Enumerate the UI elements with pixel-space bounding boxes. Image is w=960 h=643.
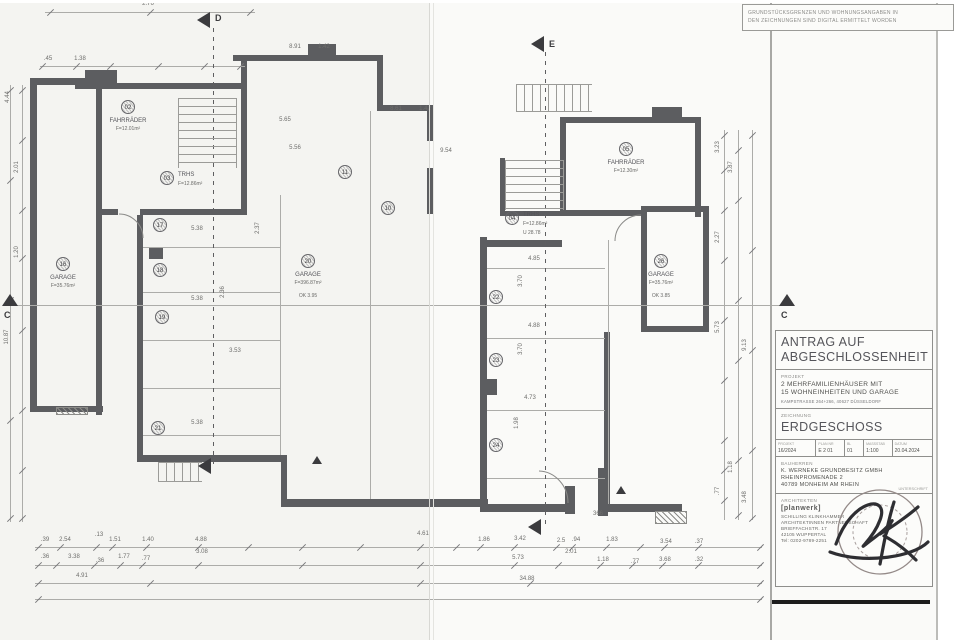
section-marker-icon: [197, 12, 210, 28]
dimension-label: 4.61: [417, 531, 429, 537]
section-cut-line: [545, 52, 546, 525]
section-marker-icon: [779, 294, 795, 306]
dimension-label: 3.68: [659, 557, 671, 563]
section-marker-icon: [312, 456, 322, 464]
wall: [641, 326, 709, 332]
dimension-label: .77: [715, 487, 721, 495]
dimension-label: 3.38: [68, 554, 80, 560]
room-number: 26: [654, 254, 668, 268]
wall: [149, 247, 163, 259]
section-marker-icon: [198, 458, 211, 474]
dimension-label: 1.38: [74, 56, 86, 62]
plan-line: [35, 583, 762, 584]
wall: [241, 55, 247, 215]
dimension-label: 1.83: [606, 537, 618, 543]
dimension-label: .39: [41, 537, 49, 543]
project-label: PROJEKT: [781, 374, 927, 379]
section-label: E: [549, 39, 555, 49]
parking-spot-number: 24: [489, 438, 503, 452]
sheet-bottom-heavy-line: [772, 600, 930, 604]
plan-line: [752, 130, 753, 520]
section-marker-icon: [528, 519, 541, 535]
title-block-meta-row: PROJEKT 16/2024 PLAN NR E 2 01 BL 01 MAS…: [776, 440, 932, 457]
plan-line: [487, 338, 605, 339]
section-label: C: [781, 310, 788, 320]
room-number: 03: [160, 171, 174, 185]
wall: [233, 55, 383, 61]
dimension-tick: [757, 562, 764, 569]
section-label: D: [215, 13, 222, 23]
plan-line: [22, 85, 23, 522]
dimension-label: .77: [631, 559, 639, 565]
dimension-label: 5.38: [191, 226, 203, 232]
dimension-label: 4.91: [76, 573, 88, 579]
wall: [695, 117, 701, 217]
wall: [604, 332, 610, 508]
dimension-label: 9.54: [440, 148, 452, 154]
dimension-label: 4.88: [528, 323, 540, 329]
dimension-label: .45: [44, 56, 52, 62]
room-area: F=12.01m²: [116, 126, 140, 133]
dimension-label: .94: [572, 537, 580, 543]
room-number: 02: [121, 100, 135, 114]
staircase: [178, 98, 237, 168]
dimension-label: 34.88: [519, 576, 534, 582]
room-area: F=12.86m²: [523, 221, 547, 228]
wall: [377, 55, 383, 111]
dimension-label: 2.54: [59, 537, 71, 543]
dimension-label: .36: [41, 554, 49, 560]
wall: [137, 215, 143, 462]
room-extra: U 28.78: [523, 230, 541, 237]
wall: [703, 206, 709, 332]
dimension-label: 5.65: [279, 117, 291, 123]
staircase: [516, 84, 592, 112]
section-marker-icon: [616, 486, 626, 494]
room-name: GARAGE: [295, 272, 321, 279]
meta-label: MASSSTAB: [866, 442, 890, 446]
wall: [281, 499, 488, 507]
dimension-label: 5.38: [191, 420, 203, 426]
wall: [96, 85, 102, 415]
dimension-label: 9.13: [742, 339, 748, 351]
wall: [137, 455, 287, 462]
plan-line: [143, 340, 280, 341]
meta-cell: BL 01: [845, 440, 864, 456]
sheet-fold-line: [429, 0, 430, 643]
room-area: F=35.76m²: [51, 283, 75, 290]
plan-line: [280, 195, 281, 455]
dimension-label: 5.56: [289, 145, 301, 151]
plan-line: [15, 305, 785, 306]
dimension-label: .32: [695, 557, 703, 563]
room-area: F=396.87m²: [294, 280, 321, 287]
dimension-label: 2.27: [715, 231, 721, 243]
meta-cell: DATUM 20.04.2024: [893, 440, 932, 456]
meta-value: 01: [847, 448, 861, 454]
sheet-fold-line: [433, 0, 434, 643]
sheet-edge-line: [770, 0, 772, 643]
scanned-floor-plan-sheet: CCDE2.76.451.388.911.428.611.429.545.655…: [0, 0, 960, 643]
dimension-label: 2.01: [14, 161, 20, 173]
hatch-vent: [56, 407, 88, 415]
plan-note: 366: [593, 511, 603, 517]
door-swing-arc: [118, 213, 144, 244]
dimension-label: 3.87: [728, 161, 734, 173]
room-extra: OK 3.85: [652, 293, 670, 300]
dimension-label: 4.88: [195, 537, 207, 543]
room-name: GARAGE: [648, 272, 674, 279]
title-block-architect: ARCHITEKTEN [planwerk] SCHILLING KLINKHA…: [776, 494, 932, 586]
wall: [641, 206, 709, 212]
disclaimer-line: GRUNDSTÜCKSGRENZEN UND WOHNUNGSANGABEN I…: [748, 9, 948, 17]
dimension-label: 1.40: [142, 537, 154, 543]
dimension-label: 1.51: [109, 537, 121, 543]
title-block-drawing: ZEICHNUNG ERDGESCHOSS: [776, 409, 932, 440]
dimension-label: 1.42: [318, 44, 330, 50]
room-name: FAHRRÄDER: [109, 118, 146, 125]
dimension-label: 4.85: [528, 256, 540, 262]
document-title-line: ANTRAG AUF: [781, 335, 927, 350]
plan-line: [724, 130, 725, 520]
wall: [480, 240, 562, 247]
dimension-label: 3.54: [660, 539, 672, 545]
wall: [652, 107, 682, 117]
room-number: 16: [56, 257, 70, 271]
plan-line: [143, 435, 280, 436]
dimension-label: 2.37: [255, 222, 261, 234]
drawing-name: ERDGESCHOSS: [781, 420, 927, 435]
parking-spot-number: 18: [153, 263, 167, 277]
title-block-project: PROJEKT 2 MEHRFAMILIENHÄUSER MIT 15 WOHN…: [776, 370, 932, 409]
parking-spot-number: 21: [151, 421, 165, 435]
dimension-label: 3.42: [514, 536, 526, 542]
plan-line: [487, 410, 605, 411]
meta-label: PROJEKT: [778, 442, 813, 446]
plan-line: [143, 292, 280, 293]
dimension-label: 3.70: [518, 275, 524, 287]
dimension-label: 2.5: [557, 538, 565, 544]
room-number: 20: [301, 254, 315, 268]
dimension-label: 3.53: [229, 348, 241, 354]
dimension-label: 3.48: [742, 491, 748, 503]
client-line: K. WERNEKE GRUNDBESITZ GMBH: [781, 468, 927, 475]
meta-cell: PROJEKT 16/2024: [776, 440, 816, 456]
dimension-label: 1.77: [118, 554, 130, 560]
wall: [480, 237, 487, 512]
parking-spot-number: 19: [155, 310, 169, 324]
dimension-label: 5.73: [715, 321, 721, 333]
dimension-tick: [757, 596, 764, 603]
wall: [75, 83, 247, 89]
room-name: GARAGE: [50, 275, 76, 282]
dimension-label: 1.18: [728, 461, 734, 473]
plan-line: [608, 240, 609, 504]
dimension-label: .37: [695, 539, 703, 545]
title-block-title: ANTRAG AUF ABGESCHLOSSENHEIT: [776, 331, 932, 370]
disclaimer-note-box: GRUNDSTÜCKSGRENZEN UND WOHNUNGSANGABEN I…: [742, 4, 954, 31]
dimension-label: .77: [142, 556, 150, 562]
dimension-label: 3.70: [518, 343, 524, 355]
dimension-label: 4.44: [5, 91, 11, 103]
drawing-label: ZEICHNUNG: [781, 413, 927, 418]
section-label: C: [4, 310, 11, 320]
scan-margin: [0, 0, 960, 3]
plan-line: [143, 388, 280, 389]
room-area: F=12.30m²: [614, 168, 638, 175]
disclaimer-line: DEN ZEICHNUNGEN SIND DIGITAL ERMITTELT W…: [748, 17, 948, 25]
parking-spot-number: 22: [489, 290, 503, 304]
plan-line: [35, 565, 762, 566]
architect-stamp-icon: [820, 480, 936, 591]
dimension-label: 3.08: [196, 549, 208, 555]
dimension-label: .13: [95, 532, 103, 538]
dimension-label: 4.73: [524, 395, 536, 401]
parking-spot-number: 23: [489, 353, 503, 367]
dimension-label: 10.87: [4, 329, 10, 344]
parking-spot-number: 11: [338, 165, 352, 179]
wall: [30, 78, 37, 412]
meta-value: 20.04.2024: [895, 448, 930, 454]
dimension-tick: [757, 580, 764, 587]
room-number: 04: [505, 211, 519, 225]
scan-margin: [938, 0, 960, 643]
client-label: BAUHERREN: [781, 461, 927, 466]
wall: [96, 209, 118, 215]
meta-label: BL: [847, 442, 861, 446]
dimension-label: 1.98: [514, 417, 520, 429]
plan-line: [143, 247, 280, 248]
room-area: F=35.76m²: [649, 280, 673, 287]
wall: [85, 70, 117, 83]
meta-value: E 2 01: [818, 448, 842, 454]
dimension-label: 5.38: [191, 296, 203, 302]
dimension-label: 8.61: [390, 106, 402, 112]
dimension-label: 1.86: [478, 537, 490, 543]
signature-icon: [830, 502, 928, 564]
dimension-label: 8.91: [289, 44, 301, 50]
parking-spot-number: 17: [153, 218, 167, 232]
document-title-line: ABGESCHLOSSENHEIT: [781, 350, 927, 365]
meta-value: 16/2024: [778, 448, 813, 454]
room-name: FAHRRÄDER: [607, 160, 644, 167]
dimension-label: 1.20: [14, 246, 20, 258]
meta-value: 1:100: [866, 448, 890, 454]
room-area: F=12.86m²: [178, 181, 202, 188]
title-block: ANTRAG AUF ABGESCHLOSSENHEIT PROJEKT 2 M…: [775, 330, 933, 587]
dimension-label: 3.23: [715, 141, 721, 153]
dimension-label: 1.18: [597, 557, 609, 563]
hatch-vent: [655, 511, 687, 524]
project-line: 15 WOHNEINHEITEN UND GARAGE: [781, 389, 927, 397]
door-swing-arc: [614, 214, 642, 247]
dimension-label: 2.36: [220, 286, 226, 298]
room-name: TRHS: [523, 212, 539, 219]
room-number: 05: [619, 142, 633, 156]
project-line: 2 MEHRFAMILIENHÄUSER MIT: [781, 381, 927, 389]
meta-cell: PLAN NR E 2 01: [816, 440, 845, 456]
wall: [483, 379, 497, 395]
parking-spot-number: 10: [381, 201, 395, 215]
dimension-label: 2.01: [565, 549, 577, 555]
meta-label: DATUM: [895, 442, 930, 446]
plan-line: [40, 66, 245, 67]
meta-cell: MASSSTAB 1:100: [864, 440, 893, 456]
dimension-label: .36: [96, 558, 104, 564]
plan-line: [35, 599, 762, 600]
room-extra: OK 3.95: [299, 293, 317, 300]
meta-label: PLAN NR: [818, 442, 842, 446]
dimension-tick: [757, 544, 764, 551]
section-cut-line: [213, 28, 214, 465]
dimension-tick: [749, 515, 756, 522]
wall: [140, 209, 247, 215]
dimension-label: 5.73: [512, 555, 524, 561]
room-name: TRHS: [178, 172, 194, 179]
staircase: [158, 462, 202, 482]
project-address: KAMPSTRASSE 264+266, 40627 DÜSSELDORF: [781, 399, 927, 404]
section-marker-icon: [2, 294, 18, 306]
wall: [560, 117, 701, 123]
door-swing-arc: [538, 468, 570, 509]
plan-line: [487, 268, 605, 269]
section-marker-icon: [531, 36, 544, 52]
staircase: [505, 160, 564, 210]
